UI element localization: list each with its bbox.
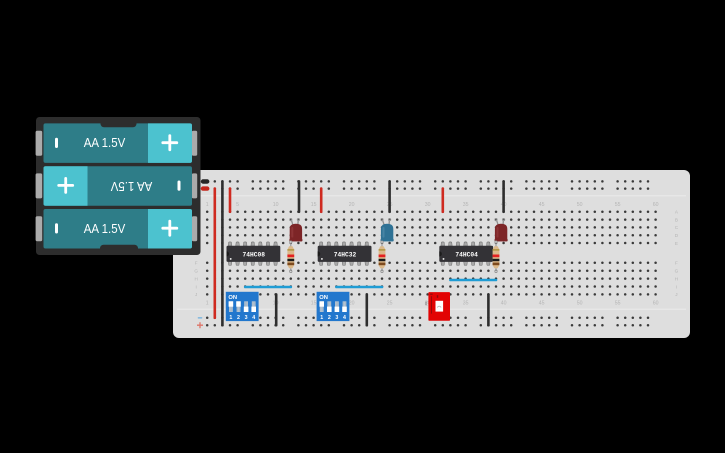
svg-text:45: 45 [539, 300, 545, 306]
svg-text:I: I [676, 284, 677, 289]
svg-text:G: G [194, 269, 198, 274]
svg-text:25: 25 [387, 300, 393, 306]
svg-text:40: 40 [501, 300, 507, 306]
svg-text:B: B [675, 217, 678, 222]
svg-text:H: H [675, 276, 678, 281]
svg-text:5: 5 [236, 202, 239, 208]
svg-text:55: 55 [615, 300, 621, 306]
svg-text:4: 4 [343, 315, 346, 321]
svg-text:4: 4 [252, 315, 255, 321]
svg-text:74HC32: 74HC32 [334, 251, 357, 258]
svg-text:45: 45 [539, 202, 545, 208]
svg-text:15: 15 [311, 300, 317, 306]
svg-text:2: 2 [328, 315, 331, 321]
svg-text:30: 30 [425, 202, 431, 208]
svg-text:3: 3 [245, 315, 248, 321]
svg-text:1: 1 [229, 315, 232, 321]
svg-text:50: 50 [577, 300, 583, 306]
svg-text:35: 35 [463, 300, 469, 306]
svg-text:J: J [675, 292, 677, 297]
svg-text:AA 1.5V: AA 1.5V [110, 179, 152, 193]
svg-text:50: 50 [577, 202, 583, 208]
svg-text:I: I [196, 284, 197, 289]
svg-text:60: 60 [653, 202, 659, 208]
svg-text:20: 20 [349, 202, 355, 208]
svg-text:1: 1 [320, 315, 323, 321]
svg-text:35: 35 [463, 202, 469, 208]
svg-text:55: 55 [615, 202, 621, 208]
svg-text:2: 2 [237, 315, 240, 321]
svg-text:3: 3 [335, 315, 338, 321]
svg-text:AA 1.5V: AA 1.5V [84, 222, 126, 236]
svg-text:60: 60 [653, 300, 659, 306]
svg-text:ON: ON [319, 295, 328, 301]
svg-text:H: H [195, 276, 198, 281]
svg-text:F: F [195, 261, 198, 266]
svg-text:1: 1 [206, 202, 209, 208]
svg-text:74HC08: 74HC08 [243, 251, 266, 258]
svg-text:E: E [675, 241, 678, 246]
svg-text:74HC04: 74HC04 [455, 251, 478, 258]
svg-text:F: F [675, 261, 678, 266]
svg-text:AA 1.5V: AA 1.5V [84, 136, 126, 150]
svg-text:15: 15 [311, 202, 317, 208]
svg-text:1: 1 [206, 300, 209, 306]
svg-text:10: 10 [273, 202, 279, 208]
svg-text:G: G [675, 269, 679, 274]
svg-text:J: J [195, 292, 197, 297]
svg-text:20: 20 [349, 300, 355, 306]
svg-text:ON: ON [228, 295, 237, 301]
